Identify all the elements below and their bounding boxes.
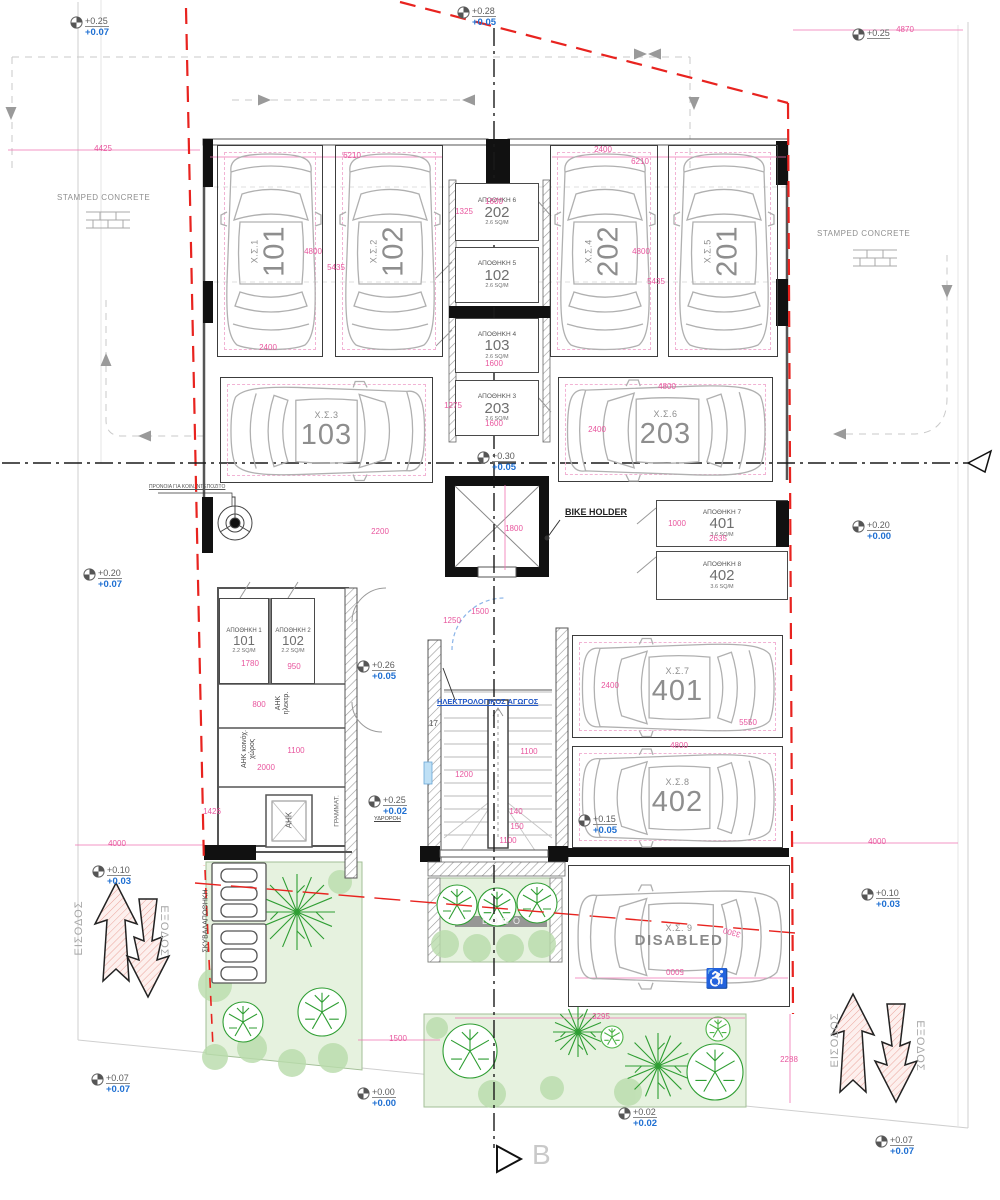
benchmark-icon	[618, 1107, 631, 1120]
storage-number: 102	[282, 634, 304, 648]
dimension-label: 4000	[108, 840, 126, 848]
benchmark-icon	[861, 888, 874, 901]
benchmark-icon	[852, 28, 865, 41]
level-marker: +0.10+0.03	[92, 865, 131, 888]
dimension-label: 2400	[594, 146, 612, 154]
parking-stall: Χ.Σ.3 103	[220, 377, 433, 483]
level-marker: +0.07+0.07	[875, 1135, 914, 1158]
benchmark-icon	[875, 1135, 888, 1148]
level-existing: +0.15	[593, 814, 617, 825]
stall-number: 102	[379, 225, 409, 276]
dimension-label: 1100	[499, 837, 516, 845]
section-marker-b-triangle	[497, 1146, 521, 1172]
level-existing: +0.28	[472, 6, 496, 17]
level-existing: +0.10	[876, 888, 900, 899]
level-existing: +0.25	[383, 795, 407, 806]
level-proposed: +0.07	[85, 27, 109, 38]
storage-number: 402	[709, 568, 734, 584]
benchmark-icon	[83, 568, 96, 581]
dimension-label: 140	[509, 808, 522, 816]
level-marker: +0.02+0.02	[618, 1107, 657, 1130]
dimension-label: 4870	[896, 26, 914, 34]
storage-area: 2.2 SQ/M	[281, 648, 304, 654]
level-existing: +0.02	[633, 1107, 657, 1118]
level-marker: +0.07+0.07	[91, 1073, 130, 1096]
level-proposed: +0.05	[372, 671, 396, 682]
dimension-label: 3295	[592, 1013, 610, 1021]
level-existing: +0.07	[106, 1073, 130, 1084]
ahk-common-line2: χώρος	[249, 739, 257, 759]
stall-number: 202	[594, 225, 624, 276]
dimension-label: 1600	[485, 360, 503, 368]
dimension-label: 1500	[471, 608, 489, 616]
level-existing: +0.30	[492, 451, 516, 462]
benchmark-icon	[357, 660, 370, 673]
wall-pier	[776, 501, 789, 547]
stamped-concrete-label-left: STAMPED CONCRETE	[57, 193, 150, 202]
level-proposed: +0.05	[492, 462, 516, 473]
dimension-label: 1325	[455, 208, 473, 216]
level-proposed: +0.07	[98, 579, 122, 590]
benchmark-icon	[91, 1073, 104, 1086]
stall-number: 203	[640, 419, 691, 449]
entrance-label-right: ΕΙΣΟΔΟΣ	[829, 1013, 841, 1068]
level-marker: +0.30+0.05	[477, 451, 516, 474]
storage-area: 2.2 SQ/M	[232, 648, 255, 654]
stall-number: 401	[652, 676, 703, 706]
dimension-label: 2200	[371, 528, 389, 536]
dimension-label: 2288	[780, 1056, 798, 1064]
ahk-common-label: ΑΗΚ κοινόχ. χώρος	[241, 730, 257, 768]
level-existing: +0.00	[372, 1087, 396, 1098]
level-marker: +0.20+0.07	[83, 568, 122, 591]
level-existing: +0.26	[372, 660, 396, 671]
dimension-label: 1200	[455, 771, 473, 779]
level-proposed: +0.03	[107, 876, 131, 887]
dimension-label: 2635	[709, 535, 727, 543]
benchmark-icon	[70, 16, 83, 29]
benchmark-icon	[852, 520, 865, 533]
dimension-label: 5435	[327, 264, 345, 272]
mailboxes-label: ΓΡΑΜΜΑΤ.	[334, 795, 341, 827]
storage-room: ΑΠΟΘΗΚΗ 2 102 2.2 SQ/M	[271, 598, 315, 684]
level-marker: +0.28+0.05	[457, 6, 496, 29]
storage-number: 203	[484, 401, 509, 417]
level-existing: +0.10	[107, 865, 131, 876]
level-proposed: +0.00	[372, 1098, 396, 1109]
dimension-label: 1600	[485, 198, 503, 206]
exit-label-left: ΕΞΟΔΟΣ	[158, 905, 170, 956]
parking-stall: Χ.Σ. 9 DISABLED ♿	[568, 865, 790, 1007]
storage-number: 103	[484, 338, 509, 354]
level-proposed: +0.07	[890, 1146, 914, 1157]
level-marker: +0.26+0.05	[357, 660, 396, 683]
dimension-label: 5550	[739, 719, 757, 727]
ahk-common-line1: ΑΗΚ κοινόχ.	[241, 730, 249, 768]
dimension-label: 150	[510, 823, 523, 831]
dimension-label: 800	[252, 701, 265, 709]
dimension-label: 6210	[343, 152, 361, 160]
dimension-label: 4800	[670, 742, 688, 750]
storage-number: 102	[484, 268, 509, 284]
water-tank	[218, 497, 252, 540]
section-marker-b-letter: B	[532, 1139, 551, 1171]
dimension-label: 4800	[658, 383, 676, 391]
dimension-label: 2400	[588, 426, 606, 434]
dimension-label: 1250	[443, 617, 461, 625]
storage-area: 2.6 SQ/M	[485, 220, 508, 226]
benchmark-icon	[368, 795, 381, 808]
wheelchair-icon: ♿	[705, 967, 729, 991]
stall-number: 103	[301, 420, 352, 450]
storage-room: ΑΠΟΘΗΚΗ 8 402 3.6 SQ/M	[656, 551, 788, 600]
benchmark-icon	[477, 451, 490, 464]
garbage-storage-label: ΣΚΥΒΑΛΑΠΟΘΗΚΗ	[203, 889, 210, 952]
entrance-arrow-left	[95, 883, 137, 981]
dimension-label: 5000	[666, 967, 684, 975]
parking-stall: Χ.Σ.2 102	[335, 145, 443, 357]
storage-number: 401	[709, 516, 734, 532]
storage-area: 2.6 SQ/M	[485, 283, 508, 289]
exit-label-right: ΕΞΟΔΟΣ	[914, 1020, 926, 1071]
level-existing: +0.20	[867, 520, 891, 531]
parking-stall: Χ.Σ.5 201	[668, 145, 778, 357]
dimension-label: 1800	[505, 525, 523, 533]
level-marker: +0.20+0.00	[852, 520, 891, 543]
bike-holder-label: BIKE HOLDER	[565, 507, 627, 517]
level-existing: +0.07	[890, 1135, 914, 1146]
storage-number: 101	[233, 634, 255, 648]
level-marker: +0.25	[852, 28, 890, 41]
brick-sketch-right	[853, 250, 897, 266]
dimension-label: 1000	[668, 520, 686, 528]
dimension-label: 1426	[203, 808, 221, 816]
plan-linework	[0, 0, 1000, 1200]
level-proposed: +0.05	[472, 17, 496, 28]
level-marker: +0.10+0.03	[861, 888, 900, 911]
dimension-label: 4000	[868, 838, 886, 846]
entrance-label-left: ΕΙΣΟΔΟΣ	[73, 901, 85, 956]
dimension-label: 6210	[631, 158, 649, 166]
benchmark-icon	[92, 865, 105, 878]
level-marker: +0.00+0.00	[357, 1087, 396, 1110]
ahk-electrical-line1: ΑΗΚ	[275, 696, 283, 710]
stall-number: DISABLED	[635, 933, 724, 949]
benchmark-icon	[578, 814, 591, 827]
level-marker: +0.15+0.05	[578, 814, 617, 837]
level-proposed: +0.02	[383, 806, 407, 817]
dimension-label: 2400	[601, 682, 619, 690]
dimension-label: 5435	[647, 278, 665, 286]
dimension-label: 1100	[287, 747, 304, 755]
ahk-electrical-label: ΑΗΚ ηλεκτρ.	[275, 692, 291, 715]
benchmark-icon	[357, 1087, 370, 1100]
benchmark-icon	[457, 6, 470, 19]
storage-number: 202	[484, 205, 509, 221]
brick-sketch-left	[86, 212, 130, 228]
level-existing: +0.20	[98, 568, 122, 579]
stall-number: 201	[713, 225, 743, 276]
ahk-room-label: ΑΗΚ	[285, 812, 294, 828]
provision-note-label: ΠΡΟΝΟΙΑ ΓΙΑ ΚΟΙΝ. ΝΤΕΠΟΖΙΤΟ	[149, 484, 225, 490]
storage-area: 3.6 SQ/M	[710, 584, 733, 590]
dimension-label: 1600	[485, 420, 503, 428]
stamped-concrete-label-right: STAMPED CONCRETE	[817, 229, 910, 238]
stall-number: 402	[652, 787, 703, 817]
exit-arrow-right	[875, 1004, 917, 1102]
electrical-duct-label: ΗΛΕΚΤΡΟΛΟΓΙΚΟΣ ΑΓΩΓΟΣ	[437, 697, 538, 706]
dimension-label: 1780	[241, 660, 259, 668]
storage-room: ΑΠΟΘΗΚΗ 5 102 2.6 SQ/M	[455, 247, 539, 303]
dimension-label: 4800	[632, 248, 650, 256]
ahk-electrical-line2: ηλεκτρ.	[283, 692, 291, 715]
dimension-label: 1275	[444, 402, 462, 410]
dimension-label: 4800	[304, 248, 322, 256]
level-proposed: +0.02	[633, 1118, 657, 1129]
parking-floor-plan: STAMPED CONCRETE STAMPED CONCRETE BIKE H…	[0, 0, 1000, 1200]
storage-room: ΑΠΟΘΗΚΗ 1 101 2.2 SQ/M	[219, 598, 269, 684]
dimension-label: 1100	[520, 748, 537, 756]
dimension-label: 2000	[257, 764, 275, 772]
logo-label: LOGO	[482, 916, 524, 926]
dimension-label: 1500	[389, 1035, 407, 1043]
level-proposed: +0.00	[867, 531, 891, 542]
level-marker: +0.25+0.02	[368, 795, 407, 818]
dimension-label: 950	[287, 663, 300, 671]
section-marker-a	[968, 451, 991, 472]
stall-number: 101	[260, 225, 290, 276]
level-marker: +0.25+0.07	[70, 16, 109, 39]
level-proposed: +0.07	[106, 1084, 130, 1095]
level-proposed: +0.03	[876, 899, 900, 910]
level-existing: +0.25	[867, 28, 890, 39]
stair-count-label: 17	[429, 719, 438, 728]
level-existing: +0.25	[85, 16, 109, 27]
dimension-label: 4425	[94, 145, 112, 153]
level-proposed: +0.05	[593, 825, 617, 836]
dimension-label: 2400	[259, 344, 277, 352]
